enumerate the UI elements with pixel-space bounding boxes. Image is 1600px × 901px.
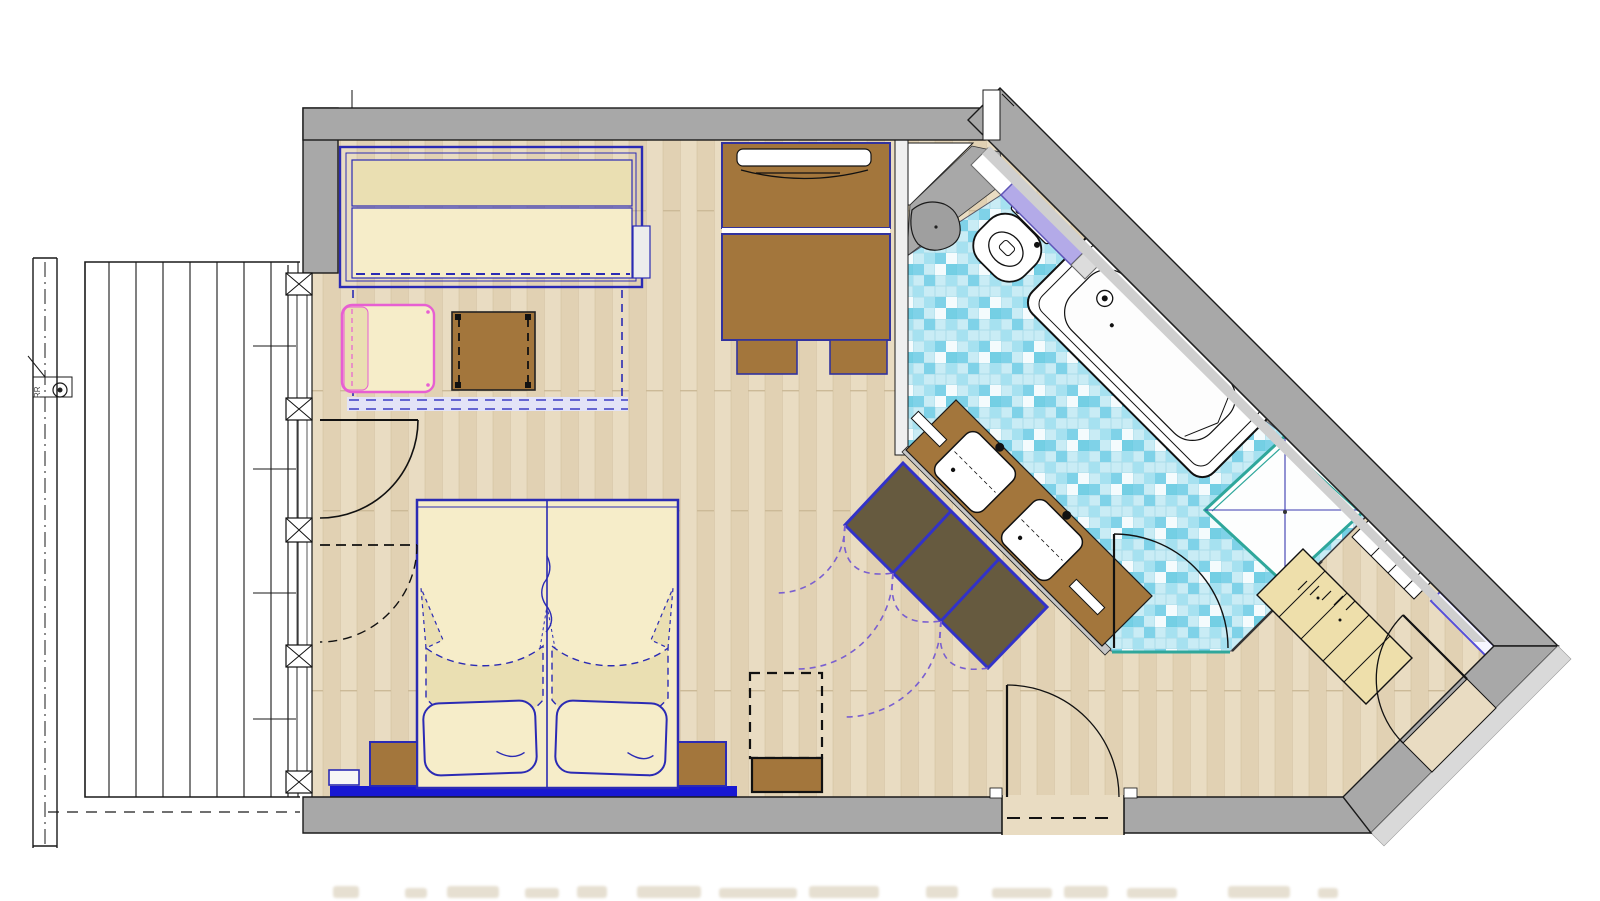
desk	[722, 234, 890, 340]
pillow-right	[555, 700, 667, 776]
wall-bottom	[303, 797, 1371, 833]
rain-downpipe: RR	[28, 356, 72, 398]
cropped-caption-remnant	[333, 886, 1338, 898]
sofa-back-cushion	[352, 160, 632, 206]
partition-wall-vertical	[895, 140, 908, 455]
coffee-table	[452, 312, 535, 390]
sofa-side-tray	[633, 226, 650, 278]
floor-plan: RR	[0, 0, 1600, 901]
downpipe-label: RR	[33, 386, 42, 398]
floor-plan-drawing: RR	[0, 0, 1600, 901]
sofa-seat	[352, 208, 632, 278]
pillow-left	[423, 700, 537, 776]
window-glazing	[297, 667, 307, 771]
wall-top	[303, 108, 985, 140]
window-glazing	[297, 295, 307, 398]
armchair	[342, 305, 434, 392]
tv	[737, 149, 871, 166]
balcony-railing	[33, 258, 57, 848]
step-box	[329, 770, 359, 785]
balcony-deck	[85, 262, 300, 797]
tv-sideboard	[722, 143, 890, 234]
desk-chair-right	[830, 340, 887, 374]
nightstand-left	[370, 742, 417, 786]
nightstand-right	[678, 742, 726, 786]
wall-notch	[983, 90, 1000, 140]
desk-chair-left	[737, 340, 797, 374]
